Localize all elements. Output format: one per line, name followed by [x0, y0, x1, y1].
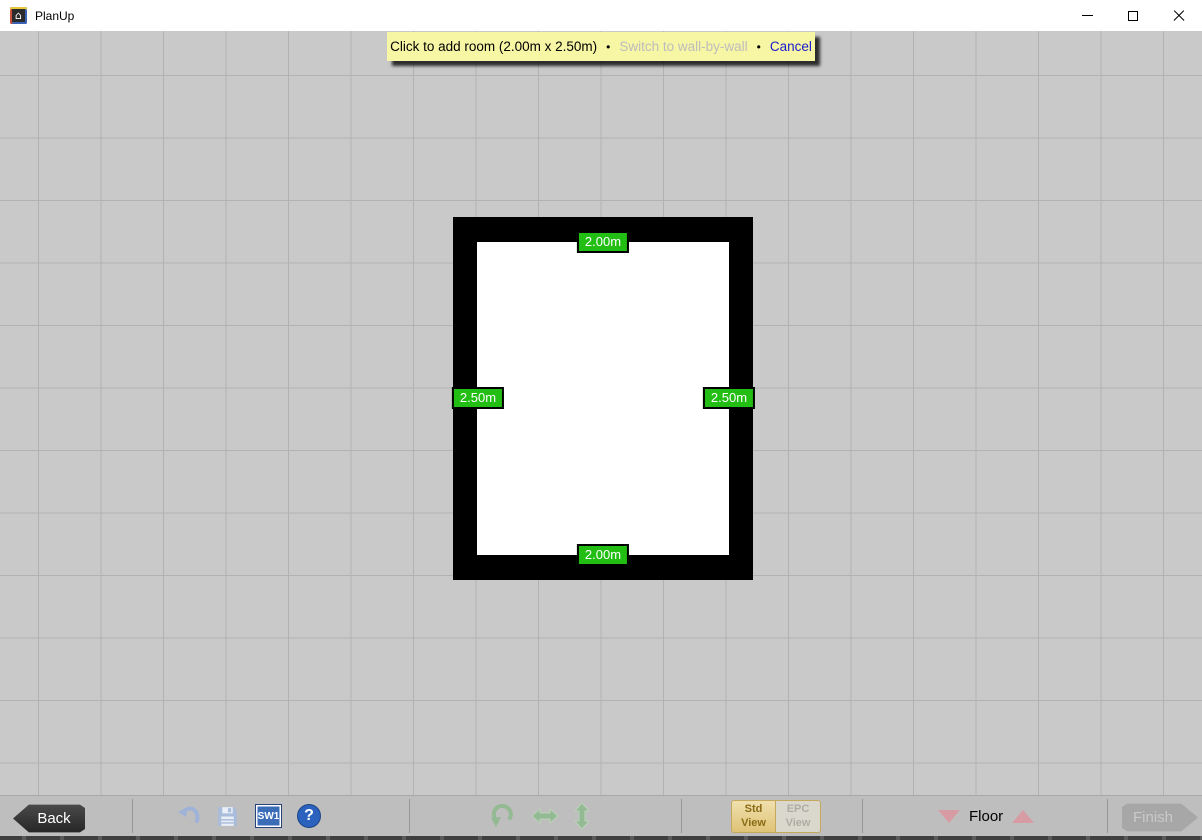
bottom-toolbar: Back SW1 ? [0, 795, 1202, 836]
room-placement-preview[interactable]: 2.00m 2.00m 2.50m 2.50m [453, 217, 753, 580]
dimension-label-bottom: 2.00m [577, 544, 629, 566]
dimension-label-top: 2.00m [577, 231, 629, 253]
epc-view-button[interactable]: EPC View [776, 801, 820, 832]
floor-label: Floor [969, 808, 1003, 825]
toolbar-divider [409, 799, 410, 833]
dimension-label-left: 2.50m [452, 387, 504, 409]
back-button[interactable]: Back [13, 804, 85, 833]
cancel-link[interactable]: Cancel [770, 39, 812, 54]
toolbar-divider [1107, 799, 1108, 833]
finish-button[interactable]: Finish [1122, 803, 1198, 832]
minimize-button[interactable] [1064, 0, 1110, 31]
flip-vertical-icon[interactable] [573, 802, 591, 835]
undo-icon[interactable] [175, 804, 202, 834]
banner-message: Click to add room (2.00m x 2.50m) [390, 39, 597, 54]
title-bar: ⌂ PlanUp [0, 0, 1202, 31]
banner-bullet: • [606, 40, 610, 54]
floor-down-icon[interactable] [938, 810, 960, 823]
view-toggle: Std View EPC View [731, 800, 821, 833]
help-icon[interactable]: ? [297, 804, 321, 828]
instruction-banner: Click to add room (2.00m x 2.50m) • Swit… [387, 32, 815, 61]
switch-to-wall-by-wall-link[interactable]: Switch to wall-by-wall [619, 39, 747, 54]
flip-horizontal-icon[interactable] [531, 807, 559, 830]
bottom-edge-strip [0, 836, 1202, 840]
window-controls [1064, 0, 1202, 31]
window-title: PlanUp [35, 9, 74, 23]
plan-canvas[interactable]: Click to add room (2.00m x 2.50m) • Swit… [0, 31, 1202, 795]
minimize-icon [1082, 15, 1093, 16]
floor-up-icon[interactable] [1012, 810, 1034, 823]
floor-selector: Floor [938, 803, 1034, 829]
close-button[interactable] [1156, 0, 1202, 31]
planup-app-icon: ⌂ [10, 7, 27, 24]
epc-view-label-line2: View [786, 817, 811, 831]
save-icon[interactable] [215, 804, 240, 834]
banner-bullet: • [757, 40, 761, 54]
std-view-label-line1: Std [745, 803, 763, 817]
toolbar-divider [132, 799, 133, 833]
sw1-icon[interactable]: SW1 [255, 804, 282, 828]
maximize-icon [1128, 11, 1138, 21]
rotate-icon[interactable] [489, 804, 516, 834]
std-view-button[interactable]: Std View [732, 801, 776, 832]
toolbar-divider [681, 799, 682, 833]
std-view-label-line2: View [741, 817, 766, 831]
room-floor [477, 242, 729, 555]
toolbar-divider [862, 799, 863, 833]
maximize-button[interactable] [1110, 0, 1156, 31]
dimension-label-right: 2.50m [703, 387, 755, 409]
epc-view-label-line1: EPC [787, 803, 810, 817]
close-icon [1173, 10, 1185, 22]
